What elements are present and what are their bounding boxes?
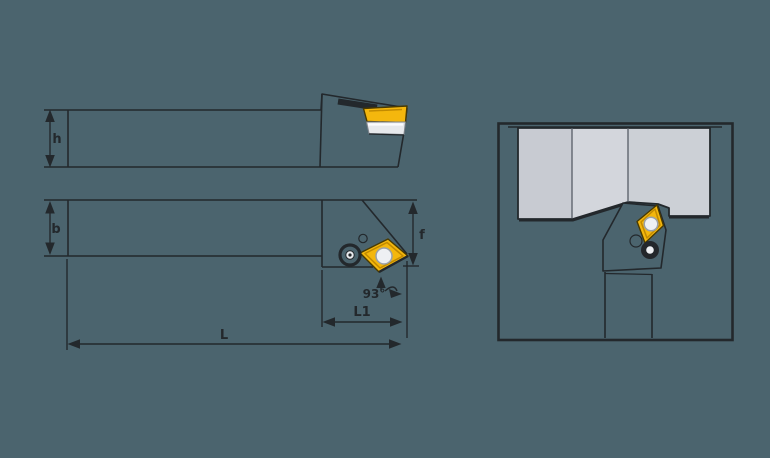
- tool-holder-drawing: h b: [0, 0, 770, 458]
- dimension-l1: L1: [323, 305, 403, 327]
- dimension-h-arrow-down: [45, 155, 55, 168]
- end-view-insert-hole: [644, 217, 658, 231]
- angle-label: 93°: [363, 287, 386, 301]
- dimension-b-label: b: [51, 222, 60, 237]
- annotation-lead-angle: 93°: [363, 277, 402, 302]
- dimension-f-label: f: [419, 228, 425, 243]
- dimension-b-arrow-up: [45, 201, 55, 214]
- top-view-screw-dot: [348, 253, 351, 256]
- workpiece-left-segment-tint: [518, 128, 572, 219]
- top-view-insert-hole: [376, 248, 392, 264]
- dimension-f: f: [408, 202, 425, 266]
- dimension-l: L: [68, 328, 402, 349]
- dimension-b: b: [45, 201, 60, 255]
- dimension-l-label: L: [220, 328, 228, 343]
- dimension-f-arrow-down: [408, 253, 418, 266]
- top-view-clamp-screw: [340, 245, 360, 265]
- dimension-h-arrow-up: [45, 110, 55, 123]
- dimension-f-arrow-up: [408, 202, 418, 215]
- end-view-shank-step: [605, 274, 652, 275]
- dimension-l-arrow-left: [68, 339, 81, 348]
- end-view-clamp-screw: [641, 241, 659, 259]
- dimension-l1-arrow-right: [390, 317, 403, 326]
- dimension-h: h: [45, 110, 61, 168]
- top-view: b f L1 L 93°: [44, 200, 425, 350]
- dimension-l1-arrow-left: [323, 317, 336, 326]
- technical-drawing-canvas: h b: [0, 0, 770, 458]
- dimension-h-label: h: [52, 132, 61, 147]
- angle-arrow-right: [389, 289, 402, 298]
- top-view-clamp-ear: [359, 234, 367, 242]
- side-view-insert: [364, 106, 408, 123]
- dimension-b-arrow-down: [45, 243, 55, 256]
- end-view: [499, 124, 733, 341]
- dimension-l1-label: L1: [353, 305, 370, 320]
- side-view: h: [44, 94, 407, 168]
- dimension-l-arrow-right: [389, 339, 402, 348]
- end-view-screw-center: [646, 246, 654, 254]
- workpiece-right-segment-tint: [628, 128, 710, 216]
